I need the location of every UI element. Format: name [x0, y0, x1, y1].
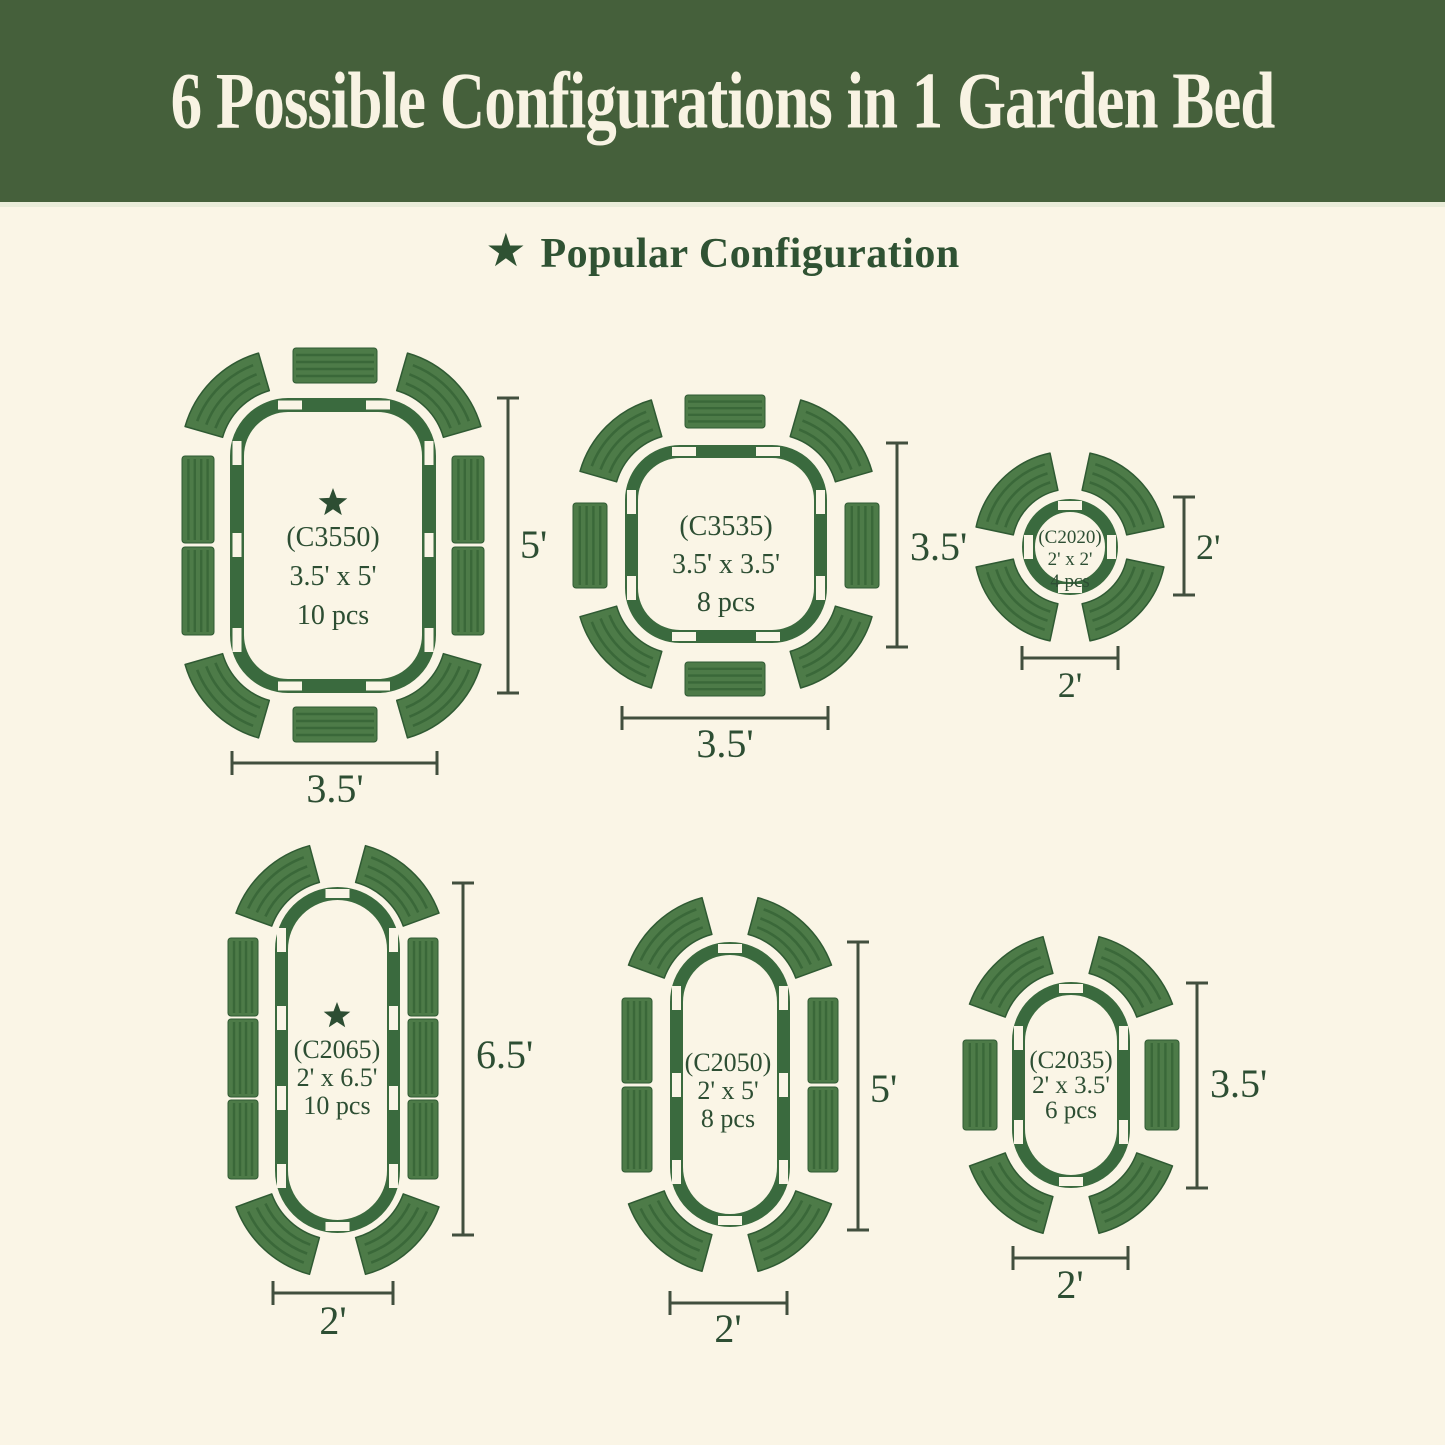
corner-panel: [356, 846, 439, 926]
straight-panel: [228, 1019, 258, 1097]
height-dimension: 2': [1173, 497, 1221, 595]
outline-gap: [389, 1164, 398, 1188]
height-dimension: 3.5': [886, 443, 967, 647]
outline-gap: [756, 632, 780, 641]
outline-gap: [425, 628, 434, 652]
model-code-label: (C3535): [679, 511, 772, 542]
outline-gap: [1059, 1177, 1083, 1186]
outline-gap: [672, 986, 681, 1010]
outline-gap: [1119, 1026, 1128, 1050]
popular-star-icon: [319, 488, 348, 515]
straight-panel: [963, 1040, 997, 1130]
outline-gap: [1058, 501, 1082, 510]
height-dimension-label: 5': [870, 1066, 897, 1111]
size-label: 2' x 3.5': [1032, 1072, 1110, 1099]
straight-panel: [808, 1087, 838, 1172]
size-label: 2' x 6.5': [297, 1063, 378, 1092]
infographic-page: 6 Possible Configurations in 1 Garden Be…: [0, 0, 1445, 1445]
height-dimension-label: 2': [1196, 527, 1221, 567]
width-dimension-label: 2': [1058, 665, 1083, 705]
straight-panel: [452, 456, 484, 543]
outline-gap: [278, 682, 302, 691]
straight-panel: [182, 456, 214, 543]
outline-gap: [277, 1086, 286, 1110]
outline-gap: [389, 928, 398, 952]
outline-gap: [1107, 535, 1116, 559]
outline-gap: [277, 928, 286, 952]
straight-panel: [293, 348, 377, 383]
outline-gap: [233, 533, 242, 557]
straight-panel: [622, 1087, 652, 1172]
outline-gap: [1014, 1026, 1023, 1050]
width-dimension: 3.5': [622, 706, 828, 766]
outline-gap: [277, 1006, 286, 1030]
outline-gap: [389, 1086, 398, 1110]
straight-panel: [808, 998, 838, 1083]
size-label: 2' x 2': [1048, 549, 1093, 570]
corner-panel: [236, 1194, 319, 1274]
width-dimension: 2': [670, 1291, 787, 1351]
outline-gap: [672, 632, 696, 641]
corner-panel: [976, 453, 1058, 535]
width-dimension: 2': [273, 1281, 393, 1343]
width-dimension: 2': [1022, 646, 1118, 705]
size-label: 3.5' x 5': [289, 561, 376, 592]
straight-panel: [408, 938, 438, 1016]
height-dimension-label: 6.5': [476, 1032, 533, 1077]
outline-gap: [389, 1006, 398, 1030]
outline-gap: [672, 1160, 681, 1184]
height-dimension: 5': [497, 398, 547, 693]
diagram-C3550: (C3550)3.5' x 5'10 pcs5'3.5': [182, 348, 547, 811]
corner-panel: [1082, 559, 1164, 641]
outline-gap: [366, 401, 390, 410]
width-dimension-label: 2': [319, 1298, 346, 1343]
outline-gap: [779, 1073, 788, 1097]
width-dimension: 3.5': [232, 751, 437, 811]
pieces-label: 4 pcs: [1050, 571, 1090, 592]
diagram-canvas: (C3550)3.5' x 5'10 pcs5'3.5'(C3535)3.5' …: [0, 0, 1445, 1445]
outline-gap: [1014, 1120, 1023, 1144]
outline-gap: [366, 682, 390, 691]
model-code-label: (C2050): [685, 1048, 772, 1077]
corner-panel: [1082, 453, 1164, 535]
width-dimension: 2': [1013, 1246, 1128, 1307]
outline-gap: [277, 1164, 286, 1188]
corner-panel: [976, 559, 1058, 641]
outline-gap: [1059, 984, 1083, 993]
outline-gap: [425, 533, 434, 557]
outline-gap: [326, 1222, 350, 1231]
corner-panel: [356, 1194, 439, 1274]
diagram-C2020: (C2020)2' x 2'4 pcs2'2': [976, 453, 1220, 705]
outline-gap: [816, 490, 825, 514]
outline-gap: [1024, 535, 1033, 559]
straight-panel: [228, 1100, 258, 1179]
height-dimension-label: 3.5': [1210, 1061, 1267, 1106]
diagram-C2035: (C2035)2' x 3.5'6 pcs3.5'2': [963, 937, 1267, 1307]
outline-gap: [233, 628, 242, 652]
size-label: 2' x 5': [697, 1076, 758, 1105]
outline-gap: [627, 490, 636, 514]
pieces-label: 8 pcs: [701, 1104, 755, 1133]
model-code-label: (C2035): [1029, 1047, 1112, 1074]
straight-panel: [408, 1019, 438, 1097]
straight-panel: [293, 707, 377, 742]
straight-panel: [573, 503, 607, 588]
size-label: 3.5' x 3.5': [672, 549, 780, 580]
width-dimension-label: 3.5': [696, 721, 753, 766]
outline-gap: [718, 1216, 742, 1225]
corner-panel: [236, 846, 319, 926]
outline-gap: [672, 1073, 681, 1097]
outline-gap: [278, 401, 302, 410]
outline-gap: [779, 1160, 788, 1184]
diagram-C2050: (C2050)2' x 5'8 pcs5'2': [622, 898, 897, 1351]
model-code-label: (C2065): [294, 1035, 381, 1064]
straight-panel: [622, 998, 652, 1083]
outline-gap: [756, 447, 780, 456]
outline-gap: [816, 576, 825, 600]
straight-panel: [408, 1100, 438, 1179]
height-dimension: 5': [847, 942, 897, 1230]
width-dimension-label: 2': [1056, 1262, 1083, 1307]
straight-panel: [685, 662, 765, 696]
outline-gap: [627, 576, 636, 600]
outline-gap: [233, 441, 242, 465]
pieces-label: 8 pcs: [697, 587, 755, 618]
diagram-C2065: (C2065)2' x 6.5'10 pcs6.5'2': [228, 846, 533, 1343]
outline-gap: [1119, 1120, 1128, 1144]
height-dimension: 3.5': [1186, 983, 1267, 1188]
straight-panel: [182, 547, 214, 635]
height-dimension: 6.5': [452, 883, 533, 1235]
outline-gap: [779, 986, 788, 1010]
model-code-label: (C2020): [1038, 527, 1101, 548]
height-dimension-label: 3.5': [910, 524, 967, 569]
height-dimension-label: 5': [520, 522, 547, 567]
width-dimension-label: 2': [714, 1306, 741, 1351]
outline-gap: [425, 441, 434, 465]
diagram-C3535: (C3535)3.5' x 3.5'8 pcs3.5'3.5': [573, 395, 967, 766]
straight-panel: [228, 938, 258, 1016]
outline-gap: [326, 889, 350, 898]
pieces-label: 10 pcs: [297, 600, 369, 631]
straight-panel: [845, 503, 879, 588]
pieces-label: 6 pcs: [1045, 1097, 1097, 1124]
straight-panel: [1145, 1040, 1179, 1130]
popular-star-icon: [324, 1002, 351, 1027]
outline-gap: [672, 447, 696, 456]
straight-panel: [452, 547, 484, 635]
outline-gap: [718, 944, 742, 953]
straight-panel: [685, 395, 765, 428]
model-code-label: (C3550): [286, 522, 379, 553]
width-dimension-label: 3.5': [306, 766, 363, 811]
pieces-label: 10 pcs: [303, 1091, 370, 1120]
